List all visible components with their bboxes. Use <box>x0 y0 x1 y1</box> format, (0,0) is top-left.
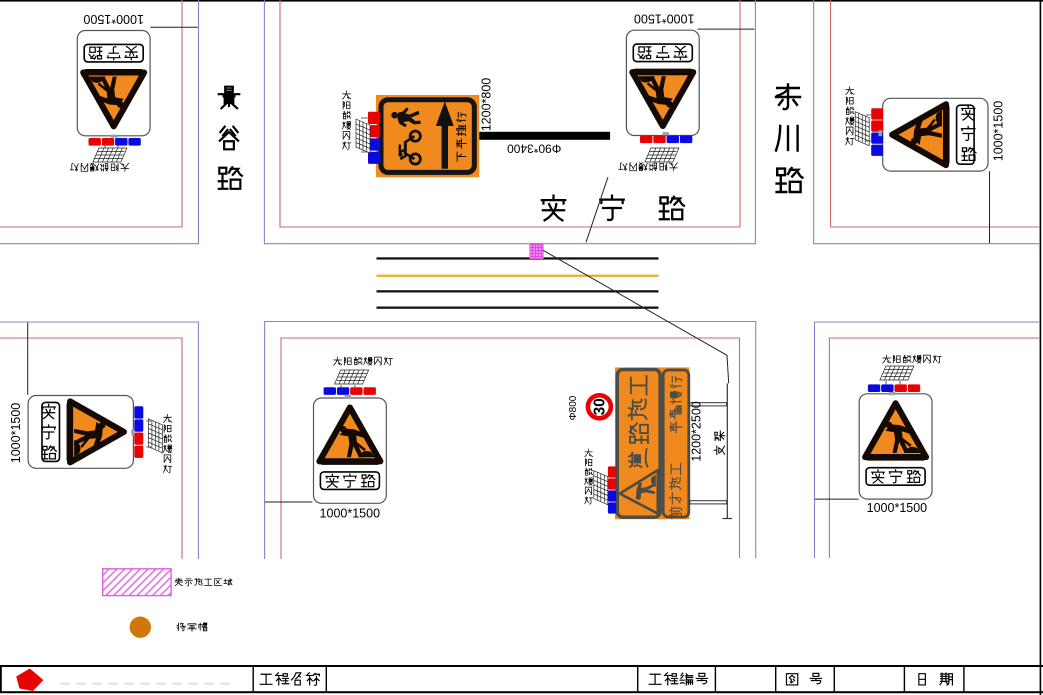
svg-text:1200*2500: 1200*2500 <box>689 401 703 462</box>
svg-text:Φ90*3400: Φ90*3400 <box>507 141 562 155</box>
svg-text:1200*800: 1200*800 <box>480 78 494 132</box>
svg-text:1000*1500: 1000*1500 <box>83 12 144 26</box>
svg-text:30: 30 <box>591 398 608 415</box>
svg-text:1000*1500: 1000*1500 <box>634 12 695 26</box>
svg-text:1000*1500: 1000*1500 <box>991 101 1005 162</box>
svg-text:1000*1500: 1000*1500 <box>320 507 381 521</box>
svg-text:1000*1500: 1000*1500 <box>867 501 928 515</box>
svg-text:Φ800: Φ800 <box>568 395 579 420</box>
svg-text:1000*1500: 1000*1500 <box>9 403 23 464</box>
